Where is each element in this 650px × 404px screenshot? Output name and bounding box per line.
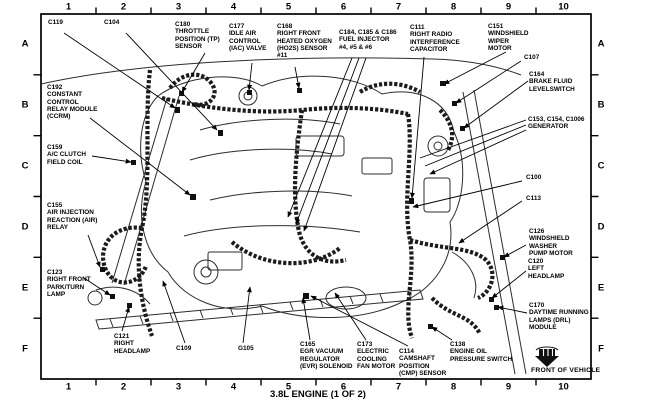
grid-column-top-6: 6	[341, 1, 346, 12]
leader-c151	[444, 52, 506, 84]
leader-c113	[459, 201, 522, 243]
wiring-loom	[103, 70, 492, 338]
leader-c1006	[430, 130, 526, 174]
diagram-stage: 3.8L ENGINE (1 OF 2) FRONT OF VEHICLE 11…	[0, 0, 650, 404]
leader-c180	[182, 53, 205, 92]
grid-column-top-10: 10	[558, 1, 569, 12]
grid-column-bottom-2: 2	[121, 382, 126, 393]
callout-g105: G105	[238, 345, 254, 352]
leader-c114	[311, 296, 408, 346]
leader-c164	[464, 81, 528, 128]
grid-row-right-D: D	[598, 221, 605, 232]
callout-c121: C121 RIGHT HEADLAMP	[114, 333, 150, 355]
grid-row-right-A: A	[598, 39, 605, 50]
leader-c126	[504, 245, 526, 257]
leader-c153	[420, 120, 526, 158]
grid-column-bottom-6: 6	[341, 382, 346, 393]
callout-c155: C155 AIR INJECTION REACTION (AIR) RELAY	[47, 202, 97, 231]
grid-row-left-F: F	[22, 343, 28, 354]
leader-c111	[412, 57, 424, 198]
callout-c138: C138 ENGINE OIL PRESSURE SWITCH	[450, 341, 512, 363]
grid-row-right-E: E	[598, 282, 604, 293]
callout-c170: C170 DAYTIME RUNNING LAMPS (DRL) MODULE	[529, 302, 589, 331]
leader-c165	[303, 298, 310, 340]
grid-row-right-F: F	[598, 343, 604, 354]
grid-column-bottom-1: 1	[66, 382, 71, 393]
grid-column-bottom-10: 10	[558, 382, 569, 393]
callout-c173: C173 ELECTRIC COOLING FAN MOTOR	[357, 341, 395, 370]
callout-c126: C126 WINDSHIELD WASHER PUMP MOTOR	[529, 228, 573, 257]
grid-column-top-8: 8	[451, 1, 456, 12]
grid-column-bottom-3: 3	[176, 382, 181, 393]
grid-column-top-1: 1	[66, 1, 71, 12]
grid-column-bottom-7: 7	[396, 382, 401, 393]
grid-row-left-D: D	[22, 221, 29, 232]
callout-c164: C164 BRAKE FLUID LEVELSWITCH	[529, 71, 575, 93]
grid-row-left-B: B	[22, 100, 29, 111]
leader-c107	[456, 61, 521, 103]
leader-c159	[92, 156, 131, 162]
leader-c192	[90, 118, 190, 195]
callout-c111: C111 RIGHT RADIO INTERFERENCE CAPACITOR	[410, 24, 460, 53]
grid-column-bottom-4: 4	[231, 382, 236, 393]
callout-c109: C109	[176, 345, 191, 352]
grid-row-left-E: E	[22, 282, 28, 293]
leader-c100	[413, 181, 522, 207]
callout-c100: C100	[526, 174, 541, 181]
callout-c159: C159 A/C CLUTCH FIELD COIL	[47, 144, 86, 166]
grid-column-top-4: 4	[231, 1, 236, 12]
leader-c170	[498, 307, 527, 313]
callout-c113: C113	[526, 195, 541, 202]
leader-c138	[432, 327, 452, 340]
grid-column-top-2: 2	[121, 1, 126, 12]
grid-row-right-C: C	[598, 161, 605, 172]
callout-c165: C165 EGR VACUUM REGULATOR (EVR) SOLENOID	[300, 341, 353, 370]
callout-c120: C120 LEFT HEADLAMP	[528, 258, 564, 280]
grid-column-bottom-8: 8	[451, 382, 456, 393]
front-of-vehicle-label: FRONT OF VEHICLE	[531, 367, 600, 374]
grid-row-left-C: C	[22, 161, 29, 172]
grid-row-left-A: A	[22, 39, 29, 50]
leader-c186	[304, 58, 366, 231]
grid-row-right-B: B	[598, 100, 605, 111]
leader-c121	[122, 307, 129, 331]
callout-c114: C114 CAMSHAFT POSITION (CMP) SENSOR	[399, 348, 446, 377]
grid-column-top-9: 9	[506, 1, 511, 12]
diagram-title: 3.8L ENGINE (1 OF 2)	[270, 389, 366, 400]
callout-c177: C177 IDLE AIR CONTROL (IAC) VALVE	[229, 23, 266, 52]
leader-c173	[335, 293, 366, 340]
callout-c184-c186: C184, C185 & C186 FUEL INJECTOR #4, #5 &…	[339, 29, 397, 51]
callout-c123: C123 RIGHT FRONT PARK/TURN LAMP	[47, 269, 91, 298]
grid-column-bottom-5: 5	[286, 382, 291, 393]
callout-c180: C180 THROTTLE POSITION (TP) SENSOR	[175, 21, 220, 50]
callout-c153-c1006: C153, C154, C1006 GENERATOR	[528, 116, 585, 131]
callout-c119: C119	[48, 19, 63, 26]
callout-c104: C104	[104, 19, 119, 26]
leader-c177	[249, 63, 252, 90]
grid-column-top-3: 3	[176, 1, 181, 12]
front-of-vehicle-arrow-icon	[535, 347, 559, 367]
leader-c155	[88, 235, 100, 267]
callout-c151: C151 WINDSHIELD WIPER MOTOR	[488, 23, 528, 52]
callout-c168: C168 RIGHT FRONT HEATED OXYGEN (HO2S) SE…	[277, 23, 332, 59]
grid-column-top-5: 5	[286, 1, 291, 12]
leader-c185	[296, 58, 359, 224]
callout-c107: C107	[524, 54, 539, 61]
callout-c192: C192 CONSTANT CONTROL RELAY MODULE (CCRM…	[47, 84, 97, 120]
grid-column-bottom-9: 9	[506, 382, 511, 393]
grid-column-top-7: 7	[396, 1, 401, 12]
